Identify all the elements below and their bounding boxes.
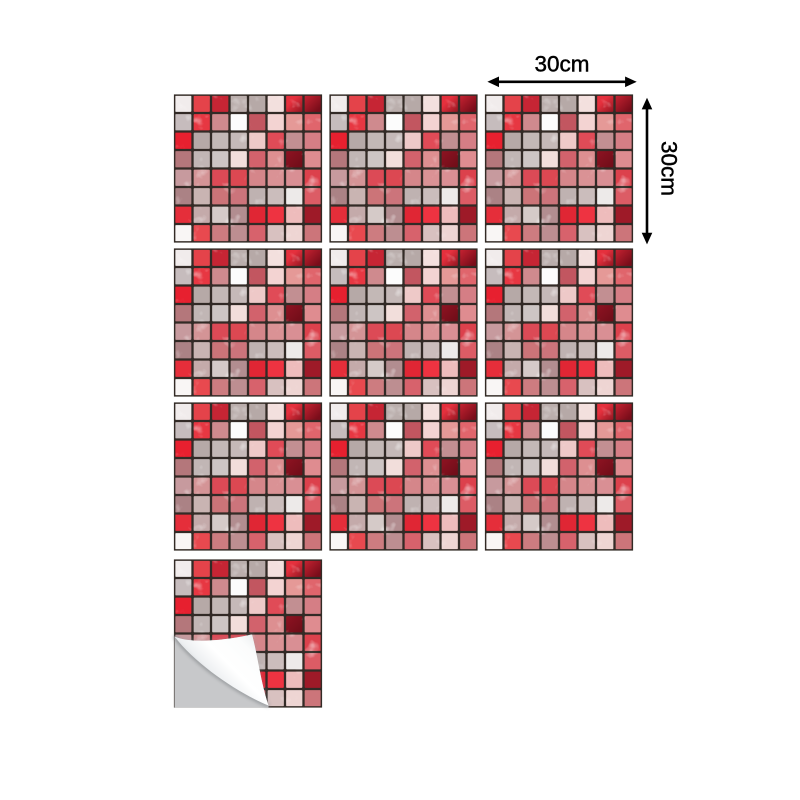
svg-text:30cm: 30cm bbox=[534, 52, 589, 77]
svg-text:30cm: 30cm bbox=[657, 141, 682, 196]
